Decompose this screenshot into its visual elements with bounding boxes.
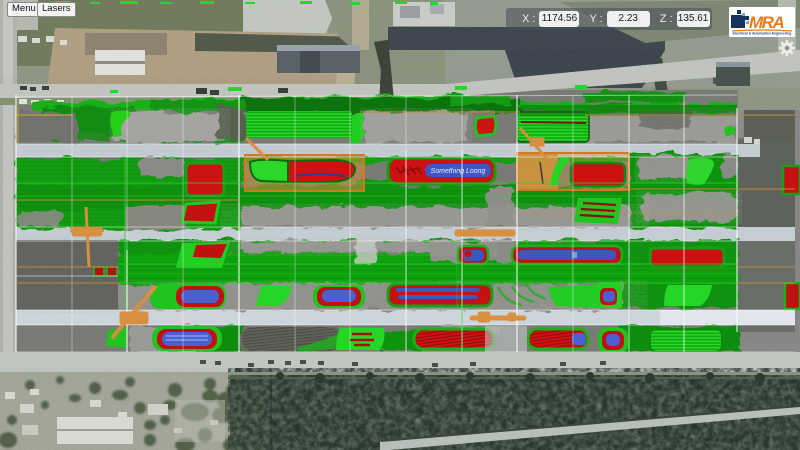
svg-text:Something Loong: Something Loong	[431, 168, 486, 175]
svg-text:Electrical & Automation Engine: Electrical & Automation Engineering	[733, 32, 792, 36]
svg-text:MRA: MRA	[749, 13, 784, 32]
